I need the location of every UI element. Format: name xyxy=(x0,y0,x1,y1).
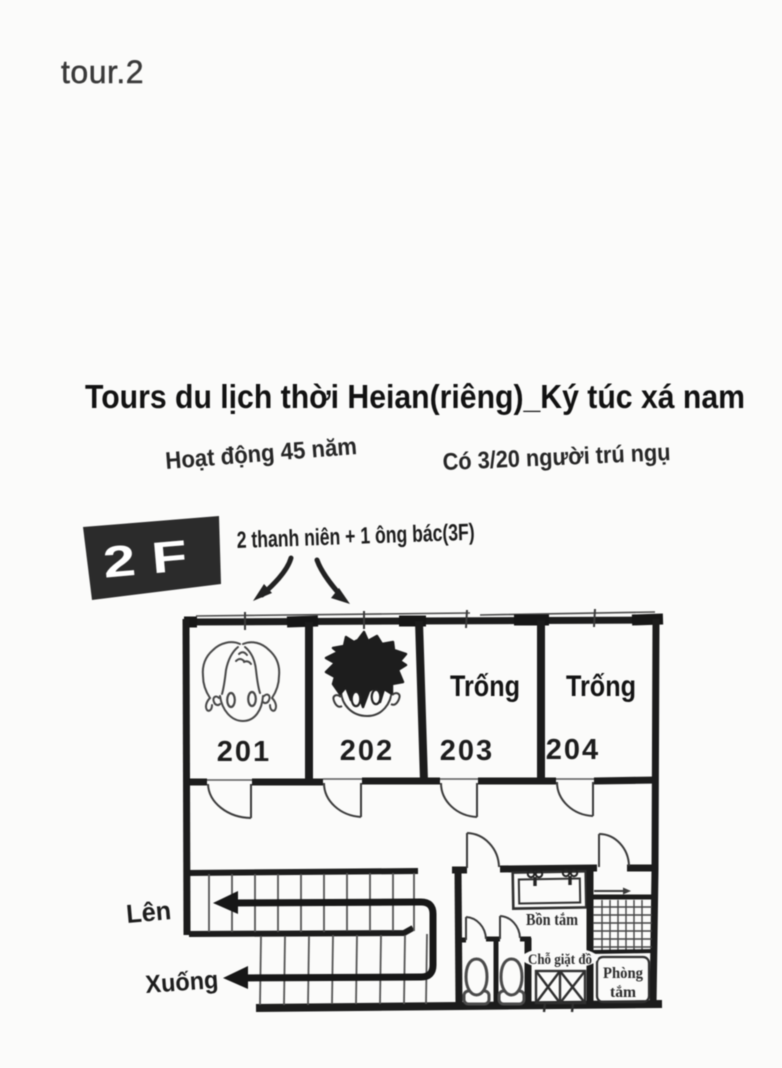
svg-text:202: 202 xyxy=(340,735,394,767)
svg-text:tắm: tắm xyxy=(610,984,637,1001)
svg-text:Trống: Trống xyxy=(450,670,520,703)
svg-text:Bồn tắm: Bồn tắm xyxy=(526,910,578,929)
svg-text:Xuống: Xuống xyxy=(144,966,219,999)
svg-text:tour.2: tour.2 xyxy=(61,54,144,90)
svg-text:203: 203 xyxy=(440,735,494,767)
svg-text:204: 204 xyxy=(546,734,600,766)
svg-text:Lên: Lên xyxy=(125,895,172,929)
svg-text:Tours du lịch thời Heian(riêng: Tours du lịch thời Heian(riêng)_Ký túc x… xyxy=(85,378,745,415)
svg-text:Chỗ giặt đồ: Chỗ giặt đồ xyxy=(528,952,592,968)
svg-text:Trống: Trống xyxy=(566,670,636,703)
svg-text:2 F: 2 F xyxy=(101,531,189,587)
svg-text:201: 201 xyxy=(217,736,271,768)
svg-text:Phòng: Phòng xyxy=(603,965,643,982)
